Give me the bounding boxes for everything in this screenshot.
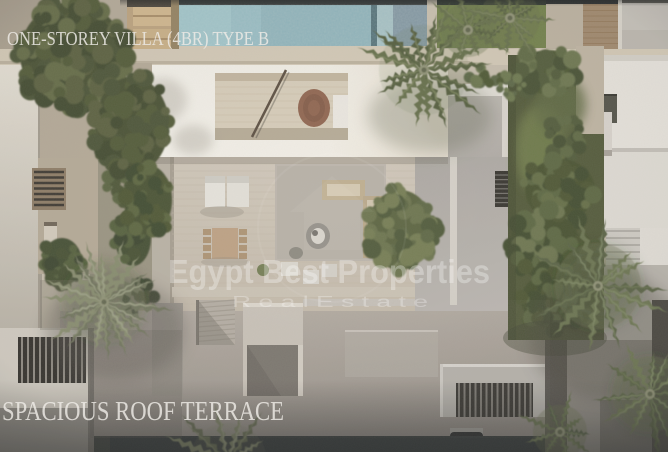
svg-text:Egypt Best Properties: Egypt Best Properties <box>168 253 490 290</box>
svg-text:ONE-STOREY VILLA (4BR) TYPE B: ONE-STOREY VILLA (4BR) TYPE B <box>7 28 269 50</box>
svg-text:SPACIOUS ROOF TERRACE: SPACIOUS ROOF TERRACE <box>2 396 284 426</box>
svg-text:R e a l E s t a t e: R e a l E s t a t e <box>232 294 428 311</box>
